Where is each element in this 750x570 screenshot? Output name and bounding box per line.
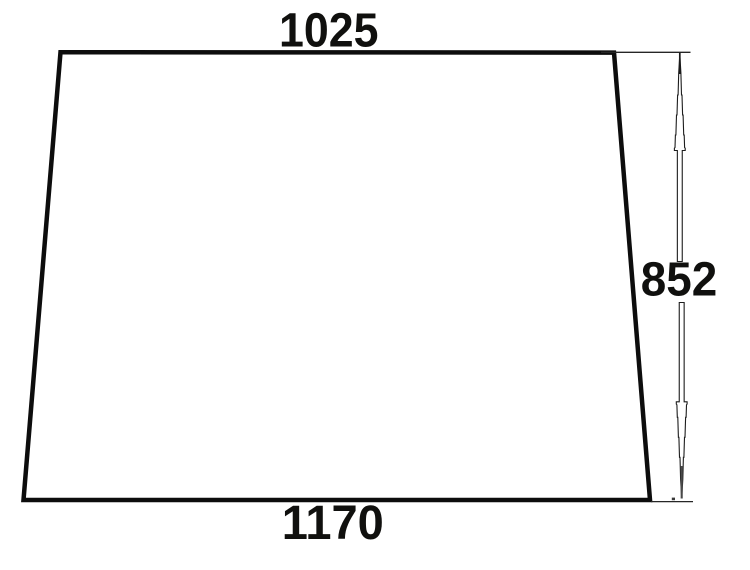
svg-text:852: 852: [641, 254, 718, 307]
svg-text:1170: 1170: [282, 497, 384, 550]
svg-text:1025: 1025: [279, 5, 379, 58]
